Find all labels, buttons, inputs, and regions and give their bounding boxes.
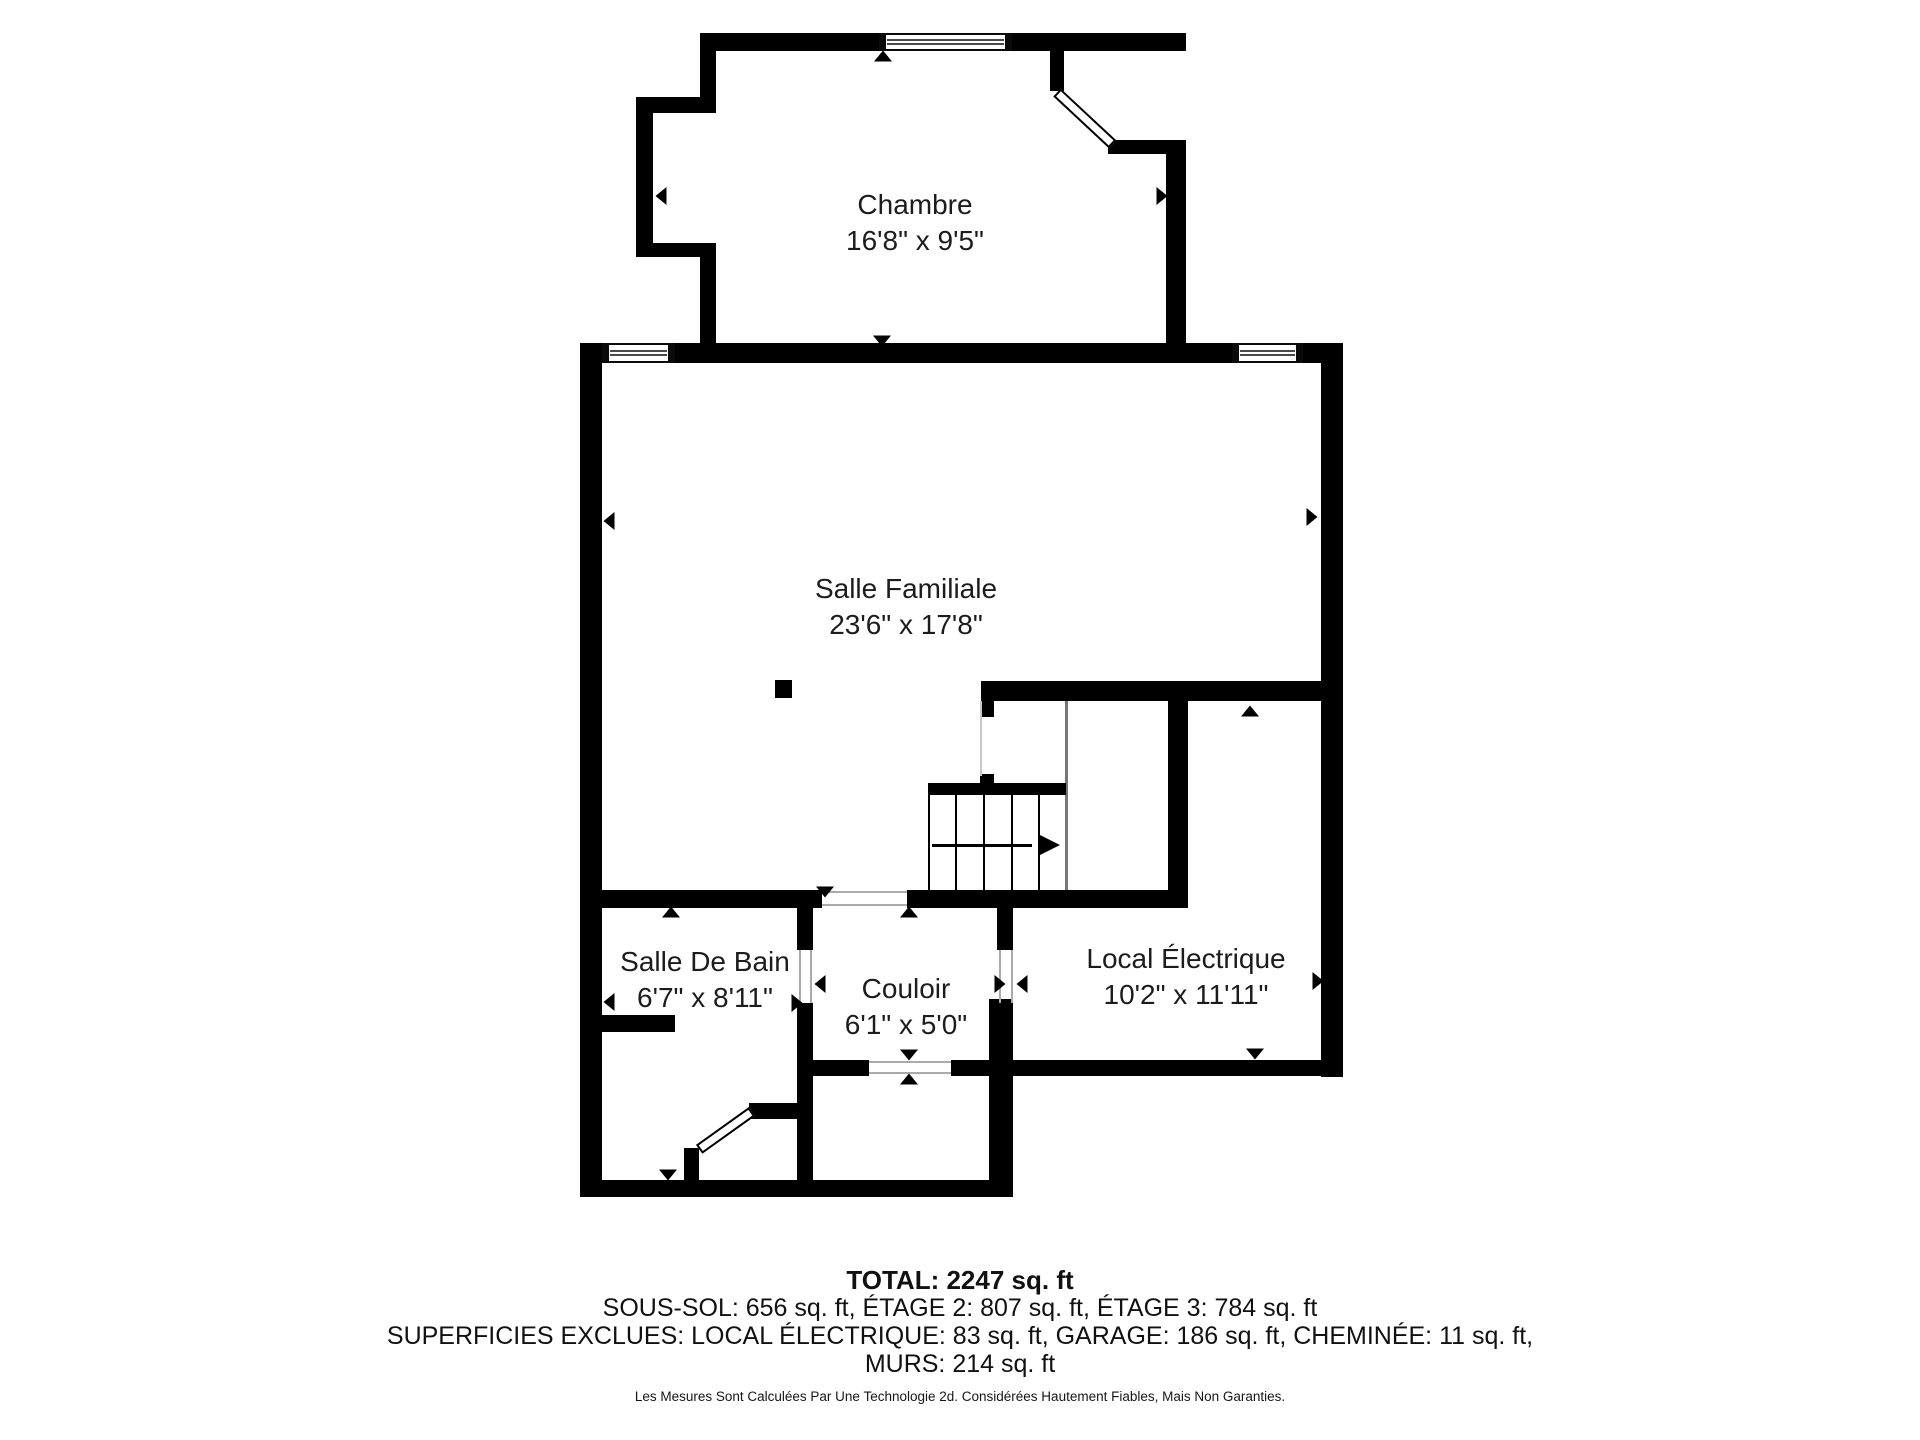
window-pane-line: [1240, 350, 1295, 356]
window-end-cap: [604, 345, 609, 361]
total-area-text: TOTAL: 2247 sq. ft: [0, 1266, 1920, 1294]
room-label-chambre: Chambre 16'8" x 9'5": [846, 187, 984, 259]
wall: [636, 97, 653, 257]
room-label-local-electrique: Local Électrique 10'2" x 11'11": [1086, 941, 1285, 1013]
wall: [989, 999, 1013, 1197]
wall: [1004, 1060, 1343, 1076]
staircase-top-bar: [928, 783, 1066, 795]
room-name: Salle Familiale: [815, 571, 997, 607]
wall: [580, 890, 822, 908]
wall: [997, 908, 1013, 950]
direction-marker: [874, 51, 892, 62]
room-label-couloir: Couloir 6'1" x 5'0": [845, 971, 967, 1043]
wall: [602, 1015, 675, 1032]
wall: [749, 1103, 813, 1119]
room-label-salle-familiale: Salle Familiale 23'6" x 17'8": [815, 571, 997, 643]
room-name: Chambre: [846, 187, 984, 223]
stair-direction-arrow-head: [1040, 835, 1060, 855]
room-name: Local Électrique: [1086, 941, 1285, 977]
stair-tread: [1011, 795, 1013, 890]
floor-areas-text: SOUS-SOL: 656 sq. ft, ÉTAGE 2: 807 sq. f…: [0, 1294, 1920, 1322]
stair-rail: [980, 701, 982, 776]
direction-marker: [792, 994, 803, 1012]
disclaimer-text: Les Mesures Sont Calculées Par Une Techn…: [0, 1389, 1920, 1404]
direction-marker: [1307, 508, 1318, 526]
direction-marker: [1157, 187, 1168, 205]
room-dimensions: 10'2" x 11'11": [1086, 977, 1285, 1013]
room-label-salle-de-bain: Salle De Bain 6'7" x 8'11": [620, 944, 790, 1016]
direction-marker: [900, 907, 918, 918]
room-dimensions: 16'8" x 9'5": [846, 223, 984, 259]
direction-marker: [1241, 706, 1259, 717]
floor-plan: Chambre 16'8" x 9'5" Salle Familiale 23'…: [0, 0, 1920, 1440]
stair-direction-arrow: [932, 844, 1032, 847]
room-name: Salle De Bain: [620, 944, 790, 980]
window-pane-line: [610, 350, 667, 356]
stair-tread: [928, 795, 930, 890]
excluded-areas-text: SUPERFICIES EXCLUES: LOCAL ÉLECTRIQUE: 8…: [0, 1322, 1920, 1350]
window-end-cap: [1296, 345, 1301, 361]
room-dimensions: 23'6" x 17'8": [815, 607, 997, 643]
wall: [1108, 140, 1166, 154]
direction-marker: [604, 993, 615, 1011]
wall: [797, 908, 813, 950]
direction-marker: [1246, 1049, 1264, 1060]
wall: [580, 1180, 1013, 1197]
area-summary: TOTAL: 2247 sq. ft SOUS-SOL: 656 sq. ft,…: [0, 1266, 1920, 1404]
wall: [981, 681, 1343, 701]
room-name: Couloir: [845, 971, 967, 1007]
room-dimensions: 6'7" x 8'11": [620, 980, 790, 1016]
wall: [1050, 51, 1064, 91]
window-pane-line: [887, 39, 1004, 45]
wall: [797, 1003, 813, 1197]
column-post: [775, 680, 792, 698]
walls-area-text: MURS: 214 sq. ft: [0, 1350, 1920, 1378]
door-leaf: [696, 1107, 755, 1154]
wall: [580, 343, 602, 1197]
direction-marker: [873, 336, 891, 347]
direction-marker: [900, 1074, 918, 1085]
opening-frame-line: [810, 950, 812, 1003]
direction-marker: [656, 187, 667, 205]
opening-frame-line: [822, 904, 907, 906]
opening-frame-line: [822, 891, 907, 893]
wall: [981, 681, 994, 717]
window-end-cap: [668, 345, 673, 361]
direction-marker: [604, 512, 615, 530]
direction-marker: [900, 1050, 918, 1061]
window-end-cap: [1005, 35, 1010, 49]
room-dimensions: 6'1" x 5'0": [845, 1007, 967, 1043]
opening-frame-line: [1011, 950, 1013, 1003]
opening-frame-line: [869, 1061, 951, 1063]
door-leaf: [1053, 88, 1116, 148]
stair-rail: [1065, 701, 1068, 890]
wall: [907, 890, 1188, 908]
wall: [1168, 681, 1188, 908]
direction-marker: [1313, 972, 1324, 990]
window: [879, 33, 1012, 51]
direction-marker: [1017, 975, 1028, 993]
direction-marker: [815, 975, 826, 993]
direction-marker: [813, 349, 831, 360]
window-end-cap: [881, 35, 886, 49]
stair-tread: [983, 795, 985, 890]
wall: [580, 343, 1343, 363]
direction-marker: [659, 1170, 677, 1181]
direction-marker: [995, 975, 1006, 993]
wall: [797, 1060, 869, 1076]
direction-marker: [816, 887, 834, 898]
window: [602, 343, 675, 363]
wall: [1166, 140, 1186, 363]
stair-tread: [955, 795, 957, 890]
window-end-cap: [1234, 345, 1239, 361]
wall: [1321, 343, 1343, 1077]
direction-marker: [662, 907, 680, 918]
window: [1232, 343, 1303, 363]
